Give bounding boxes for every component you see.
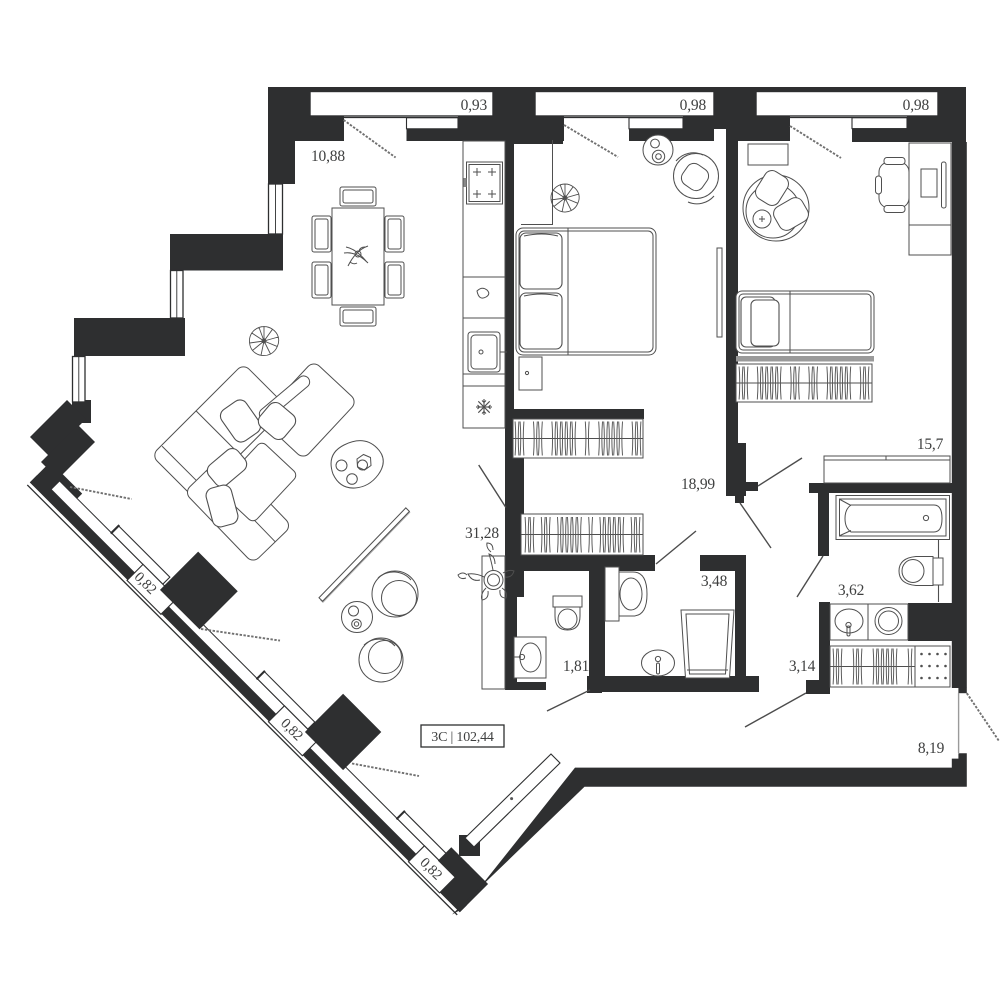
svg-text:8,19: 8,19	[918, 740, 945, 757]
svg-text:18,99: 18,99	[681, 476, 715, 493]
svg-text:31,28: 31,28	[465, 525, 499, 542]
svg-text:1,81: 1,81	[563, 658, 589, 675]
svg-text:15,7: 15,7	[917, 436, 944, 453]
svg-text:3,62: 3,62	[838, 582, 864, 599]
svg-text:3,14: 3,14	[789, 658, 816, 675]
svg-text:0,98: 0,98	[680, 97, 707, 114]
svg-text:0,93: 0,93	[461, 97, 488, 114]
svg-text:3С | 102,44: 3С | 102,44	[431, 730, 494, 745]
svg-text:10,88: 10,88	[311, 148, 345, 165]
svg-text:0,98: 0,98	[903, 97, 930, 114]
svg-text:3,48: 3,48	[701, 573, 728, 590]
